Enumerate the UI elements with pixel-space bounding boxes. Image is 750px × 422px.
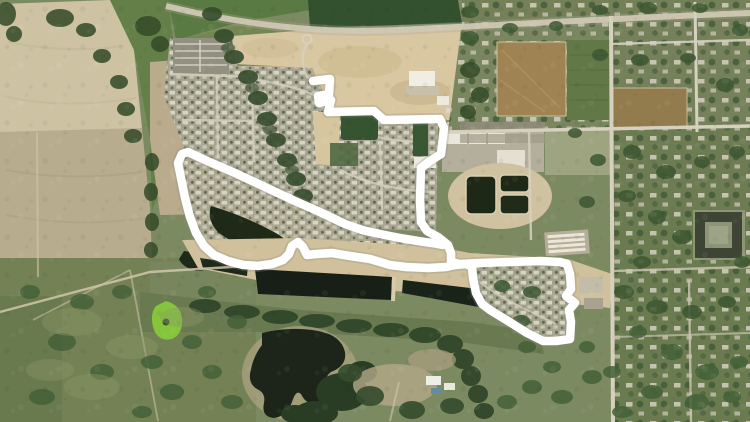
- screenshot-root: [0, 0, 750, 422]
- haze-overlay: [0, 0, 750, 422]
- satellite-map: [0, 0, 750, 422]
